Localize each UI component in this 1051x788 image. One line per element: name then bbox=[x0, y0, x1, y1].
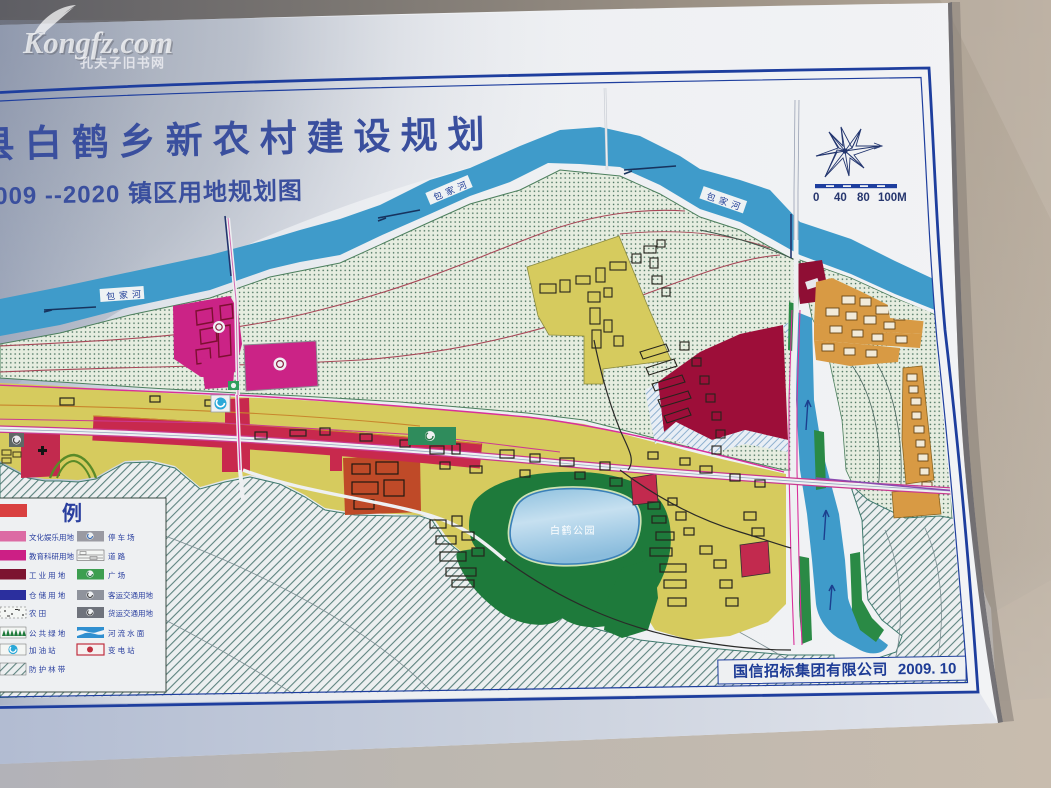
svg-text:教育科研用地: 教育科研用地 bbox=[29, 551, 74, 561]
svg-text:国信招标集团有限公司: 国信招标集团有限公司 bbox=[733, 660, 888, 680]
svg-text:广 场: 广 场 bbox=[108, 570, 126, 580]
svg-text:文化娱乐用地: 文化娱乐用地 bbox=[29, 532, 74, 542]
svg-text:变 电 站: 变 电 站 bbox=[108, 645, 135, 655]
svg-text:仓 储 用 地: 仓 储 用 地 bbox=[29, 590, 66, 600]
svg-text:货运交通用地: 货运交通用地 bbox=[108, 608, 153, 618]
svg-text:工 业 用 地: 工 业 用 地 bbox=[29, 570, 66, 580]
svg-text:防 护 林 带: 防 护 林 带 bbox=[29, 664, 66, 674]
svg-text:例: 例 bbox=[62, 501, 82, 525]
svg-text:孔夫子旧书网: 孔夫子旧书网 bbox=[80, 56, 165, 71]
svg-text:河 流 水 面: 河 流 水 面 bbox=[108, 628, 145, 638]
svg-text:100M: 100M bbox=[878, 192, 907, 204]
svg-text:客运交通用地: 客运交通用地 bbox=[108, 590, 153, 600]
svg-text:0: 0 bbox=[813, 192, 819, 204]
svg-text:公 共 绿 地: 公 共 绿 地 bbox=[29, 628, 66, 638]
svg-text:停 车 场: 停 车 场 bbox=[108, 532, 135, 542]
svg-text:加 油 站: 加 油 站 bbox=[29, 645, 56, 655]
svg-text:80: 80 bbox=[857, 192, 870, 204]
svg-text:40: 40 bbox=[834, 192, 847, 204]
svg-text:白鹤公园: 白鹤公园 bbox=[550, 524, 596, 537]
svg-text:农 田: 农 田 bbox=[29, 608, 46, 618]
svg-text:2009 --2020 镇区用地规划图: 2009 --2020 镇区用地规划图 bbox=[0, 178, 303, 211]
svg-text:2009. 10: 2009. 10 bbox=[898, 660, 957, 678]
svg-text:道 路: 道 路 bbox=[108, 551, 126, 561]
